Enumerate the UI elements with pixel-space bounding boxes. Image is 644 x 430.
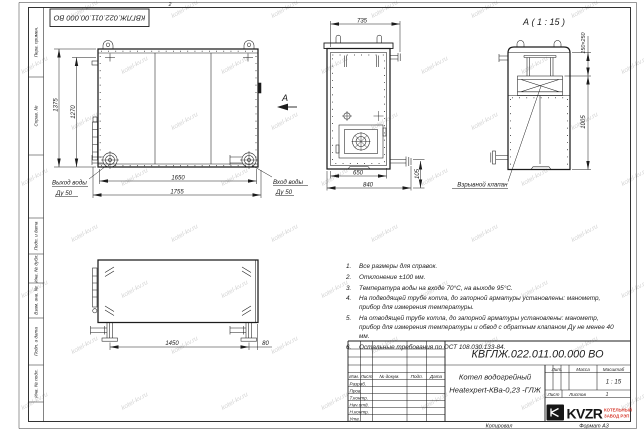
stamp-inv-podl: Инв. № подл. [34,369,39,398]
tb-listov-label: Листов [568,392,586,397]
stamp-inv-dubl: Инв. № дубл. [34,254,39,282]
water-inlet-dn: Ду 50 [275,189,293,196]
tb-row-utv: Утв. [350,416,360,421]
detail-a-bolt-dots [511,98,568,166]
note-item-2: 2.Отклонение ±100 мм. [346,274,618,283]
note-item-4: 4.На подводящей трубе котла, до запорной… [346,295,618,313]
top-dim-840: 840 [363,182,374,188]
tb-row-nkontr: Н.контр. [350,409,369,414]
tb-col-list: Лист [360,374,373,379]
note-number: 2. [346,274,359,283]
note-item-3: 3.Температура воды на входе 70°С, на вых… [346,285,618,294]
notes-block: 1.Все размеры для справок. 2.Отклонение … [346,263,618,354]
tb-masshtab-label: Масштаб [603,367,625,372]
top-dim-650: 650 [353,170,364,176]
drawing-sheet: 2 Перв. примен. Справ. № Подп. и дата Ин… [0,0,644,430]
front-view-section-arrow [277,104,297,111]
front-dim-1755: 1755 [170,190,184,196]
note-text: Температура воды на входе 70°С, на выход… [359,285,618,294]
detail-dim-1005: 1005 [581,115,587,129]
company-name-line1: КОТЕЛЬНЫЙ [604,408,632,413]
bottom-dim-80: 80 [262,341,269,347]
detail-a-linework [491,41,570,170]
stamp-sprav-n: Справ. № [34,106,39,127]
doc-number-rotated: КВГЛЖ.022.011.00.000 ВО [53,13,145,22]
zone-number: 2 [168,2,172,8]
note-number: 1. [346,263,359,272]
front-view-bolt-dots [100,51,256,165]
note-item-5: 5.На отводящей трубе котла, до запорной … [346,315,618,341]
bottom-view: 1450 80 [91,260,273,350]
kvzr-logo-text: KVZR [567,406,603,422]
tb-massa-label: Масса [576,367,590,372]
tb-lit-label: Лит. [551,367,563,372]
note-text: Все размеры для справок. [359,263,618,272]
footer-copied-label: Копировал [486,423,513,429]
drawing-sheet-page: kotel-kv.rukotel-kv.rukotel-kv.rukotel-k… [0,0,644,430]
note-text: Отклонение ±100 мм. [359,274,618,283]
stamp-vzam-inv: Взам. инв. № [34,286,39,314]
note-item-1: 1.Все размеры для справок. [346,263,618,272]
note-text: На отводящей трубе котла, до запорной ар… [359,315,618,341]
bottom-view-dimensions [110,324,272,350]
note-number: 5. [346,315,359,341]
tb-col-data: Дата [429,374,443,379]
bottom-dim-1450: 1450 [165,341,179,347]
tb-product-name-2: Heatexpert-КВа-0,23 -ГЛЖ [449,386,541,395]
front-dim-1375: 1375 [53,98,59,112]
tb-row-prov: Пров. [350,388,362,393]
note-number: 3. [346,285,359,294]
tb-row-razrab: Разраб. [350,381,367,386]
note-number: 4. [346,295,359,313]
footer-format-label: Формат А3 [579,423,609,429]
front-view: 1375 1270 1650 1755 Выход воды Ду 50 Вхо… [52,41,308,199]
water-inlet-label: Вход воды [273,179,303,186]
note-text: Остальные требования по ОСТ 108.030.133-… [359,344,618,353]
stamp-column: Перв. примен. Справ. № Подп. и дата Инв.… [34,27,39,398]
tb-col-podp: Подп. [411,374,423,379]
tb-scale-value: 1 : 15 [606,379,622,386]
detail-a-title: А ( 1 : 15 ) [522,17,565,27]
detail-a-view: А ( 1 : 15 ) [452,17,591,189]
kvzr-logo-mark [547,405,565,421]
top-dim-735: 735 [357,18,368,24]
note-item-6: 6.Остальные требования по ОСТ 108.030.13… [346,344,618,353]
explosion-valve-callout: Взрывной клапан [457,182,508,189]
stamp-perv-primen: Перв. примен. [34,27,39,58]
doc-number-box: КВГЛЖ.022.011.00.000 ВО [50,9,149,27]
tb-col-izm: Изм. [349,374,359,379]
water-outlet-dn: Ду 50 [55,190,73,197]
stamp-podp-data-2: Подп. и дата [34,327,39,356]
stamp-podp-data-1: Подп. и дата [34,221,39,250]
tb-row-nachotd: Нач.отд. [350,402,369,407]
tb-product-name-1: Котел водогрейный [459,373,532,382]
tb-list-label: Лист [547,392,560,397]
top-dim-105: 105 [415,168,421,179]
tb-col-dokum: № докум. [379,374,399,379]
tb-listov-value: 1 [606,392,609,398]
tb-row-tkontr: Т.контр. [350,395,369,400]
top-view: 735 650 840 105 [324,18,425,190]
company-name-line2: ЗАВОД РЭП [604,414,629,419]
top-view-dimensions [327,21,425,191]
sheet-frame [19,3,637,429]
front-dim-1270: 1270 [71,105,77,119]
front-dim-1650: 1650 [171,176,185,182]
kvzr-logo: KVZR КОТЕЛЬНЫЙ ЗАВОД РЭП [547,405,632,422]
water-outlet-label: Выход воды [52,180,87,187]
detail-dim-valve: 150×250 [581,32,587,53]
bottom-view-linework [91,260,257,341]
front-view-linework [92,41,261,170]
note-text: На подводящей трубе котла, до запорной а… [359,295,618,313]
view-arrow-letter: А [281,93,288,103]
note-number: 6. [346,344,359,353]
